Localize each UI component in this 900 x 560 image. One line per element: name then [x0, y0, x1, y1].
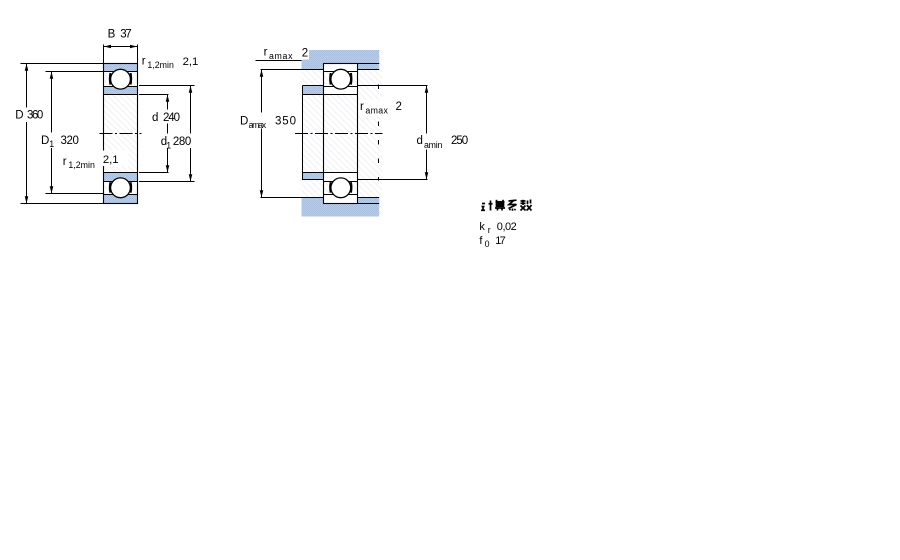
svg-text:240: 240: [163, 112, 180, 124]
svg-text:17: 17: [495, 235, 506, 247]
svg-text:B: B: [108, 29, 116, 41]
svg-text:r: r: [142, 56, 146, 68]
svg-text:2,1: 2,1: [103, 154, 119, 166]
svg-text:1: 1: [49, 139, 54, 149]
svg-text:r: r: [488, 225, 491, 235]
svg-text:360: 360: [27, 109, 43, 121]
svg-text:320: 320: [61, 135, 79, 147]
svg-text:2: 2: [396, 101, 402, 113]
svg-text:1: 1: [166, 141, 171, 151]
svg-text:amax: amax: [249, 120, 267, 130]
svg-text:280: 280: [173, 136, 191, 148]
svg-text:k: k: [479, 221, 485, 233]
svg-text:D: D: [41, 135, 49, 147]
svg-text:2: 2: [302, 48, 308, 60]
svg-text:amin: amin: [424, 140, 442, 150]
svg-text:r: r: [264, 46, 268, 58]
svg-text:r: r: [360, 101, 364, 113]
svg-text:amax: amax: [269, 51, 293, 61]
svg-text:350: 350: [275, 115, 296, 127]
svg-text:2,1: 2,1: [183, 56, 199, 68]
svg-text:D: D: [15, 109, 23, 121]
svg-text:d: d: [417, 135, 423, 147]
svg-text:D: D: [240, 115, 248, 127]
svg-text:1,2min: 1,2min: [147, 60, 174, 70]
svg-text:250: 250: [451, 135, 468, 147]
svg-text:d: d: [152, 112, 158, 124]
svg-text:amax: amax: [365, 106, 388, 116]
svg-text:1,2min: 1,2min: [68, 160, 95, 170]
svg-text:0: 0: [485, 239, 490, 249]
svg-text:r: r: [63, 156, 67, 168]
svg-text:37: 37: [120, 29, 131, 41]
svg-text:0,02: 0,02: [497, 221, 517, 233]
